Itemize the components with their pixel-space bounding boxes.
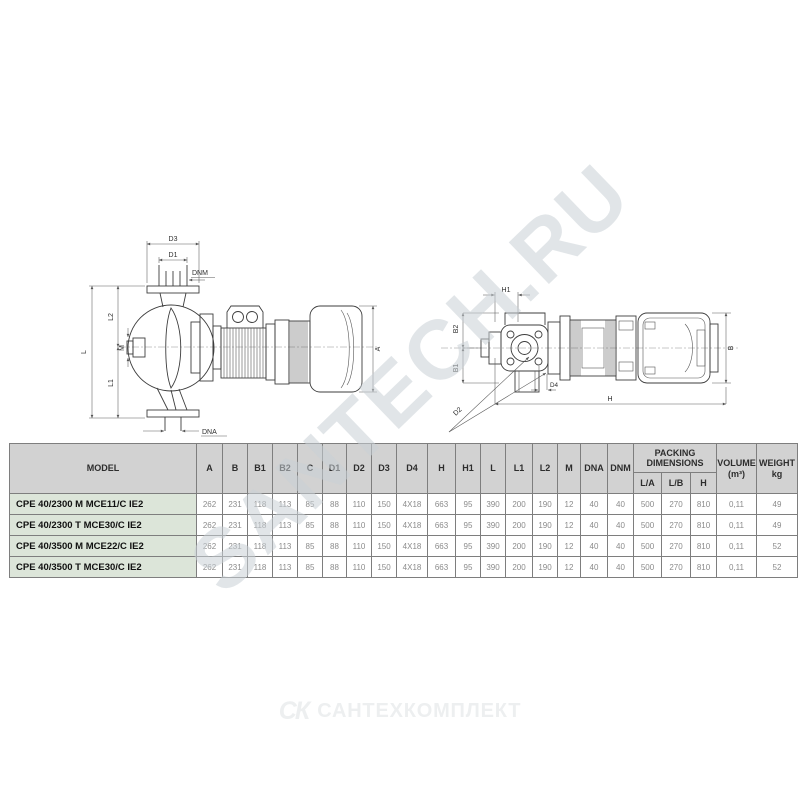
dim-label-d2: D2	[452, 406, 463, 417]
value-cell: 85	[298, 536, 323, 557]
value-cell: 40	[608, 515, 634, 536]
value-cell: 150	[372, 536, 397, 557]
value-cell: 118	[248, 557, 273, 578]
col-header-dim: D2	[347, 444, 372, 494]
dim-label-l1: L1	[108, 379, 115, 387]
value-cell: 88	[323, 536, 347, 557]
col-header-dim: D4	[397, 444, 428, 494]
value-cell: 95	[456, 494, 481, 515]
brand-name: САНТЕХКОМПЛЕКТ	[317, 700, 521, 723]
value-cell: 52	[757, 536, 798, 557]
value-cell: 12	[558, 536, 581, 557]
weight-label: WEIGHT	[757, 458, 797, 468]
col-header-lb: L/B	[662, 473, 691, 494]
value-cell: 150	[372, 515, 397, 536]
value-cell: 200	[506, 557, 533, 578]
value-cell: 95	[456, 515, 481, 536]
value-cell: 40	[608, 536, 634, 557]
value-cell: 200	[506, 515, 533, 536]
value-cell: 12	[558, 515, 581, 536]
value-cell: 500	[634, 494, 662, 515]
value-cell: 40	[581, 536, 608, 557]
dim-label-b: B	[728, 345, 735, 350]
col-header-dim: L2	[533, 444, 558, 494]
table-row: CPE 40/3500 M MCE22/C IE2 262 231 118 11…	[10, 536, 798, 557]
col-header-weight: WEIGHT kg	[757, 444, 798, 494]
value-cell: 190	[533, 557, 558, 578]
value-cell: 0,11	[717, 536, 757, 557]
value-cell: 88	[323, 557, 347, 578]
dim-label-b1: B1	[453, 364, 460, 373]
value-cell: 231	[223, 557, 248, 578]
dim-label-b2: B2	[453, 325, 460, 334]
value-cell: 85	[298, 494, 323, 515]
col-header-dim: B	[223, 444, 248, 494]
value-cell: 270	[662, 557, 691, 578]
volume-label: VOLUME	[717, 458, 756, 468]
volume-unit: (m³)	[717, 469, 756, 479]
value-cell: 810	[691, 536, 717, 557]
value-cell: 4X18	[397, 536, 428, 557]
col-header-dim: M	[558, 444, 581, 494]
col-header-dim: L1	[506, 444, 533, 494]
dim-label-dna: DNA	[202, 429, 217, 436]
col-header-model: MODEL	[10, 444, 197, 494]
value-cell: 95	[456, 536, 481, 557]
col-header-dim: DNM	[608, 444, 634, 494]
value-cell: 0,11	[717, 494, 757, 515]
value-cell: 88	[323, 494, 347, 515]
value-cell: 85	[298, 557, 323, 578]
value-cell: 40	[581, 557, 608, 578]
value-cell: 95	[456, 557, 481, 578]
col-header-dim: B1	[248, 444, 273, 494]
value-cell: 200	[506, 494, 533, 515]
dim-label-d1: D1	[169, 252, 178, 259]
weight-unit: kg	[757, 469, 797, 479]
value-cell: 190	[533, 494, 558, 515]
dim-label-l2: L2	[108, 313, 115, 321]
value-cell: 52	[757, 557, 798, 578]
value-cell: 85	[298, 515, 323, 536]
value-cell: 12	[558, 557, 581, 578]
value-cell: 231	[223, 515, 248, 536]
dim-label-dnm: DNM	[192, 270, 208, 277]
value-cell: 4X18	[397, 557, 428, 578]
col-header-packing: PACKING DIMENSIONS	[634, 444, 717, 473]
col-header-dim: H1	[456, 444, 481, 494]
dim-label-l: L	[81, 350, 88, 354]
col-header-dim: H	[428, 444, 456, 494]
dim-label-d4: D4	[550, 382, 559, 389]
value-cell: 110	[347, 494, 372, 515]
value-cell: 390	[481, 557, 506, 578]
value-cell: 110	[347, 515, 372, 536]
value-cell: 40	[608, 557, 634, 578]
col-header-la: L/A	[634, 473, 662, 494]
value-cell: 113	[273, 557, 298, 578]
dim-label-d3: D3	[169, 236, 178, 243]
col-header-dim: B2	[273, 444, 298, 494]
dimensions-table: MODEL A B B1 B2 C D1 D2 D3 D4 H H1 L L1 …	[9, 443, 798, 578]
value-cell: 150	[372, 494, 397, 515]
value-cell: 190	[533, 536, 558, 557]
value-cell: 0,11	[717, 557, 757, 578]
pump-body-art	[127, 265, 362, 431]
value-cell: 390	[481, 515, 506, 536]
value-cell: 113	[273, 494, 298, 515]
value-cell: 49	[757, 515, 798, 536]
value-cell: 110	[347, 536, 372, 557]
value-cell: 150	[372, 557, 397, 578]
brand-monogram-icon: СК	[279, 697, 308, 726]
col-header-dim: L	[481, 444, 506, 494]
value-cell: 810	[691, 557, 717, 578]
model-cell: CPE 40/3500 M MCE22/C IE2	[10, 536, 197, 557]
value-cell: 118	[248, 515, 273, 536]
value-cell: 40	[581, 494, 608, 515]
col-header-ph: H	[691, 473, 717, 494]
value-cell: 500	[634, 515, 662, 536]
model-cell: CPE 40/2300 M MCE11/C IE2	[10, 494, 197, 515]
value-cell: 262	[197, 494, 223, 515]
dim-label-a: A	[375, 346, 382, 351]
value-cell: 663	[428, 515, 456, 536]
col-header-dim: D3	[372, 444, 397, 494]
value-cell: 231	[223, 494, 248, 515]
header-row-main: MODEL A B B1 B2 C D1 D2 D3 D4 H H1 L L1 …	[10, 444, 798, 473]
value-cell: 262	[197, 557, 223, 578]
value-cell: 110	[347, 557, 372, 578]
value-cell: 88	[323, 515, 347, 536]
table-row: CPE 40/2300 M MCE11/C IE2 262 231 118 11…	[10, 494, 798, 515]
col-header-volume: VOLUME (m³)	[717, 444, 757, 494]
value-cell: 270	[662, 536, 691, 557]
pump-top-art	[481, 313, 718, 392]
value-cell: 663	[428, 536, 456, 557]
value-cell: 0,11	[717, 515, 757, 536]
value-cell: 118	[248, 536, 273, 557]
value-cell: 12	[558, 494, 581, 515]
col-header-dim: A	[197, 444, 223, 494]
value-cell: 49	[757, 494, 798, 515]
dim-label-m: M	[119, 345, 126, 351]
value-cell: 200	[506, 536, 533, 557]
value-cell: 40	[581, 515, 608, 536]
col-header-dim: D1	[323, 444, 347, 494]
value-cell: 390	[481, 536, 506, 557]
value-cell: 663	[428, 494, 456, 515]
value-cell: 500	[634, 557, 662, 578]
value-cell: 113	[273, 536, 298, 557]
value-cell: 113	[273, 515, 298, 536]
value-cell: 231	[223, 536, 248, 557]
brand-footer: СК САНТЕХКОМПЛЕКТ	[0, 697, 800, 726]
model-cell: CPE 40/3500 T MCE30/C IE2	[10, 557, 197, 578]
spec-table-section: MODEL A B B1 B2 C D1 D2 D3 D4 H H1 L L1 …	[9, 443, 798, 578]
table-row: CPE 40/3500 T MCE30/C IE2 262 231 118 11…	[10, 557, 798, 578]
value-cell: 190	[533, 515, 558, 536]
value-cell: 663	[428, 557, 456, 578]
table-row: CPE 40/2300 T MCE30/C IE2 262 231 118 11…	[10, 515, 798, 536]
dim-label-h1: H1	[502, 287, 511, 294]
model-cell: CPE 40/2300 T MCE30/C IE2	[10, 515, 197, 536]
value-cell: 262	[197, 536, 223, 557]
col-header-dim: C	[298, 444, 323, 494]
col-header-dim: DNA	[581, 444, 608, 494]
value-cell: 118	[248, 494, 273, 515]
dim-label-h: H	[607, 396, 612, 403]
pump-side-view-diagram: D3 D1 DNM L L2 L1 M A DNA	[75, 228, 385, 443]
value-cell: 390	[481, 494, 506, 515]
value-cell: 810	[691, 515, 717, 536]
value-cell: 4X18	[397, 494, 428, 515]
value-cell: 270	[662, 494, 691, 515]
value-cell: 500	[634, 536, 662, 557]
value-cell: 4X18	[397, 515, 428, 536]
pump-top-view-diagram: H1 B2 B1 B H D4 D2	[435, 282, 745, 437]
value-cell: 270	[662, 515, 691, 536]
value-cell: 262	[197, 515, 223, 536]
value-cell: 40	[608, 494, 634, 515]
value-cell: 810	[691, 494, 717, 515]
